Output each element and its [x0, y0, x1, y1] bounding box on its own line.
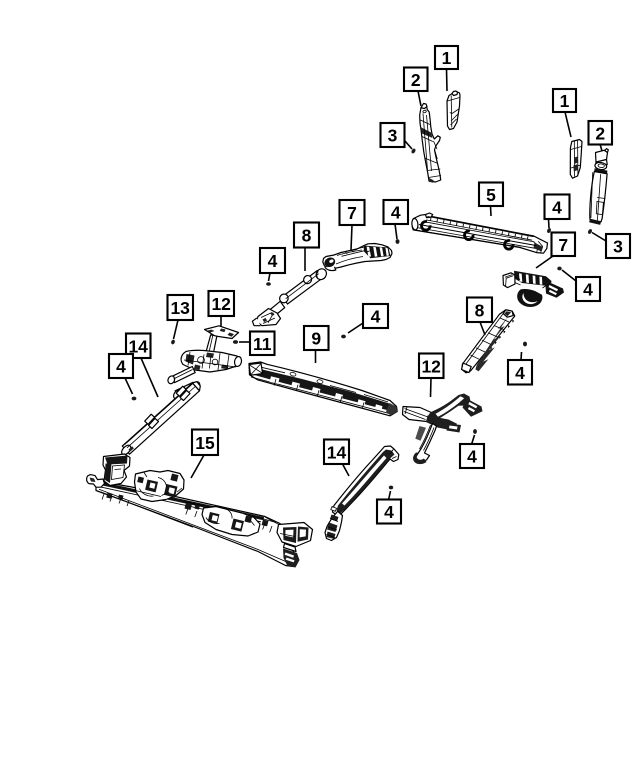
svg-text:4: 4 [384, 502, 394, 522]
svg-text:4: 4 [116, 357, 126, 377]
svg-text:4: 4 [371, 307, 381, 327]
svg-text:1: 1 [442, 48, 452, 68]
svg-text:1: 1 [560, 91, 570, 111]
svg-text:14: 14 [327, 442, 347, 462]
svg-text:4: 4 [268, 251, 278, 271]
svg-text:11: 11 [253, 334, 272, 354]
svg-text:13: 13 [170, 298, 190, 318]
svg-text:4: 4 [515, 363, 525, 383]
svg-text:9: 9 [311, 329, 321, 349]
svg-text:12: 12 [421, 356, 441, 376]
svg-text:5: 5 [486, 185, 496, 205]
svg-text:3: 3 [388, 126, 398, 146]
svg-text:12: 12 [211, 294, 231, 314]
svg-text:4: 4 [391, 203, 401, 223]
svg-text:4: 4 [467, 447, 477, 467]
svg-text:7: 7 [558, 235, 568, 255]
svg-text:8: 8 [475, 300, 485, 320]
svg-text:4: 4 [583, 280, 593, 300]
svg-text:8: 8 [302, 226, 312, 246]
svg-text:15: 15 [195, 433, 215, 453]
svg-text:2: 2 [595, 123, 605, 143]
svg-text:2: 2 [411, 70, 421, 90]
svg-text:3: 3 [613, 237, 623, 257]
svg-text:7: 7 [347, 203, 357, 223]
svg-text:4: 4 [552, 197, 562, 217]
